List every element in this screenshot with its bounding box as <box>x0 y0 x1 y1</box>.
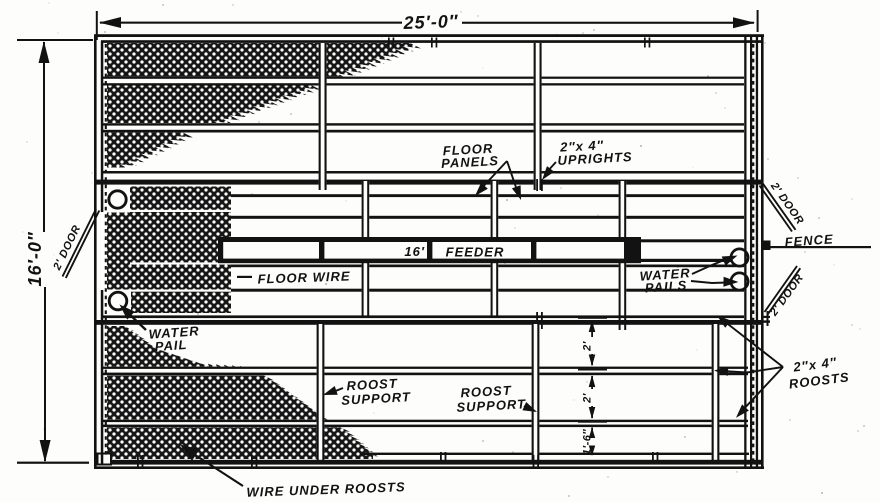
svg-text:2′: 2′ <box>582 340 594 352</box>
svg-text:PAILS: PAILS <box>644 278 687 296</box>
svg-text:25′-0″: 25′-0″ <box>402 11 459 33</box>
svg-text:2′: 2′ <box>582 392 594 404</box>
svg-text:PANELS: PANELS <box>441 153 499 171</box>
svg-text:PAIL: PAIL <box>154 337 188 354</box>
svg-text:16′-0″: 16′-0″ <box>25 231 45 286</box>
svg-text:16′: 16′ <box>404 244 425 259</box>
svg-text:1′-6″: 1′-6″ <box>582 429 594 456</box>
svg-text:FEEDER: FEEDER <box>446 245 505 260</box>
